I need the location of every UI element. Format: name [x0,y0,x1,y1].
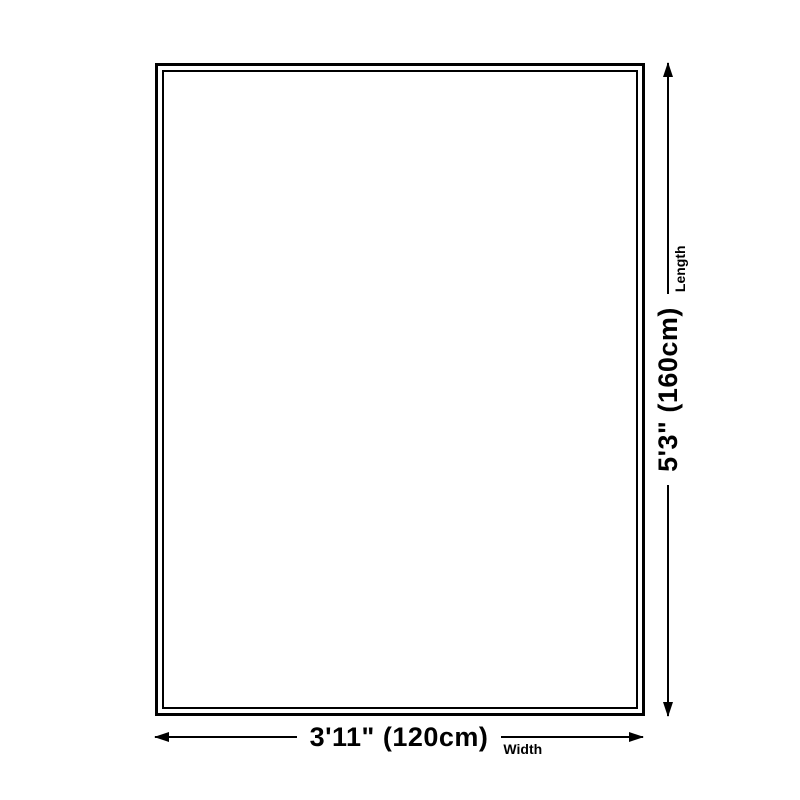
arrow-left-icon [154,732,169,742]
width-label: Width [503,742,542,756]
width-dimension-line-right: Width [501,736,643,738]
width-dimension: 3'11" (120cm) Width [155,715,643,759]
length-value: 5'3" (160cm) [655,307,682,472]
length-label: Length [673,245,687,292]
width-value: 3'11" (120cm) [310,724,489,751]
arrow-up-icon [663,62,673,77]
length-dimension-line-bottom [667,485,669,716]
size-diagram: 3'11" (120cm) Width 5'3" (160cm) Length [0,0,800,800]
width-dimension-line-left [155,736,297,738]
item-outline-inner [162,70,638,709]
arrow-down-icon [663,702,673,717]
arrow-right-icon [629,732,644,742]
item-outline-outer [155,63,645,716]
length-dimension: 5'3" (160cm) Length [646,63,690,716]
length-dimension-line-top: Length [667,63,669,294]
